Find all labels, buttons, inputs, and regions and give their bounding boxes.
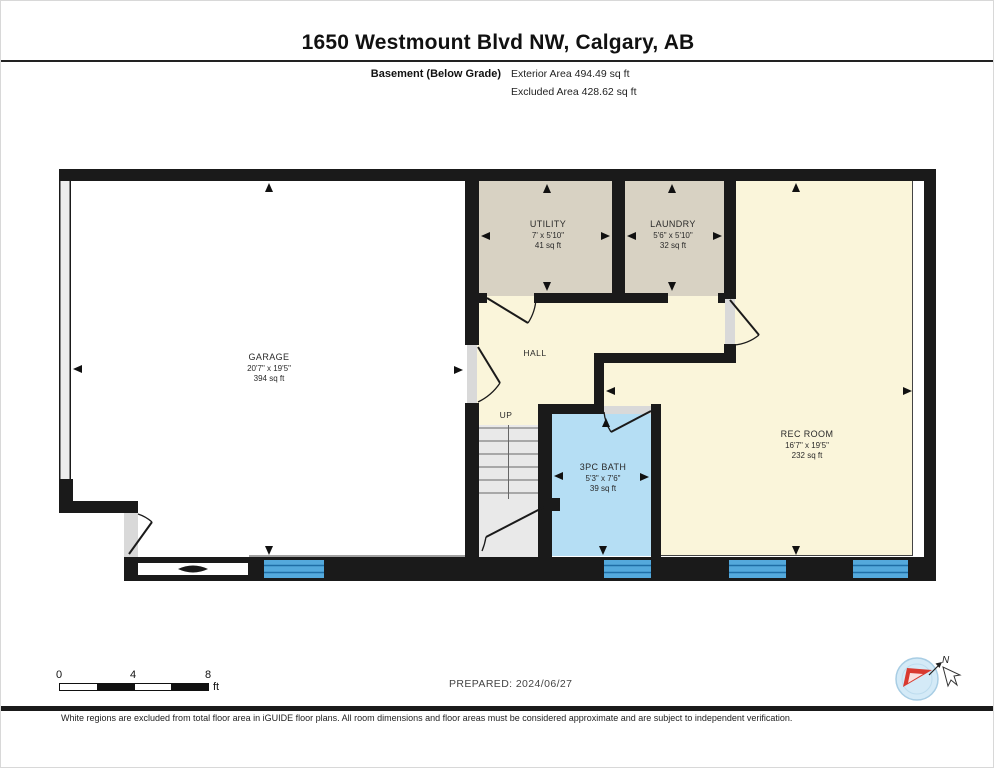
room-label-bath: 3PC BATH 5'3" x 7'6" 39 sq ft [533, 462, 673, 494]
window-garage [264, 560, 324, 578]
scale-bar: 0 4 8 ft [59, 669, 229, 695]
window-rec-1 [729, 560, 786, 578]
floorplan-page: 1650 Westmount Blvd NW, Calgary, AB Base… [0, 0, 994, 768]
room-label-hall: HALL [523, 348, 546, 358]
scale-tick-4: 4 [130, 669, 136, 681]
room-label-utility: UTILITY 7' x 5'10" 41 sq ft [478, 219, 618, 251]
footer-divider [1, 706, 994, 711]
scale-bar-ruler [59, 683, 209, 691]
scale-tick-0: 0 [56, 669, 62, 681]
room-label-laundry: LAUNDRY 5'6" x 5'10" 32 sq ft [603, 219, 743, 251]
cursor-pointer-icon [943, 667, 960, 686]
room-label-rec-room: REC ROOM 16'7" x 19'5" 232 sq ft [737, 429, 877, 461]
compass-icon: N [896, 655, 960, 700]
room-label-garage: GARAGE 20'7" x 19'5" 394 sq ft [199, 352, 339, 384]
stairs-up-label: UP [500, 410, 513, 420]
window-bath [604, 560, 651, 578]
scale-unit: ft [213, 681, 219, 693]
footer-disclaimer: White regions are excluded from total fl… [61, 713, 961, 723]
garage-door [138, 563, 248, 575]
prepared-date: PREPARED: 2024/06/27 [449, 678, 572, 690]
floor-plan-drawing: N [1, 1, 994, 768]
north-label: N [942, 655, 950, 666]
scale-tick-8: 8 [205, 669, 211, 681]
window-rec-2 [853, 560, 908, 578]
